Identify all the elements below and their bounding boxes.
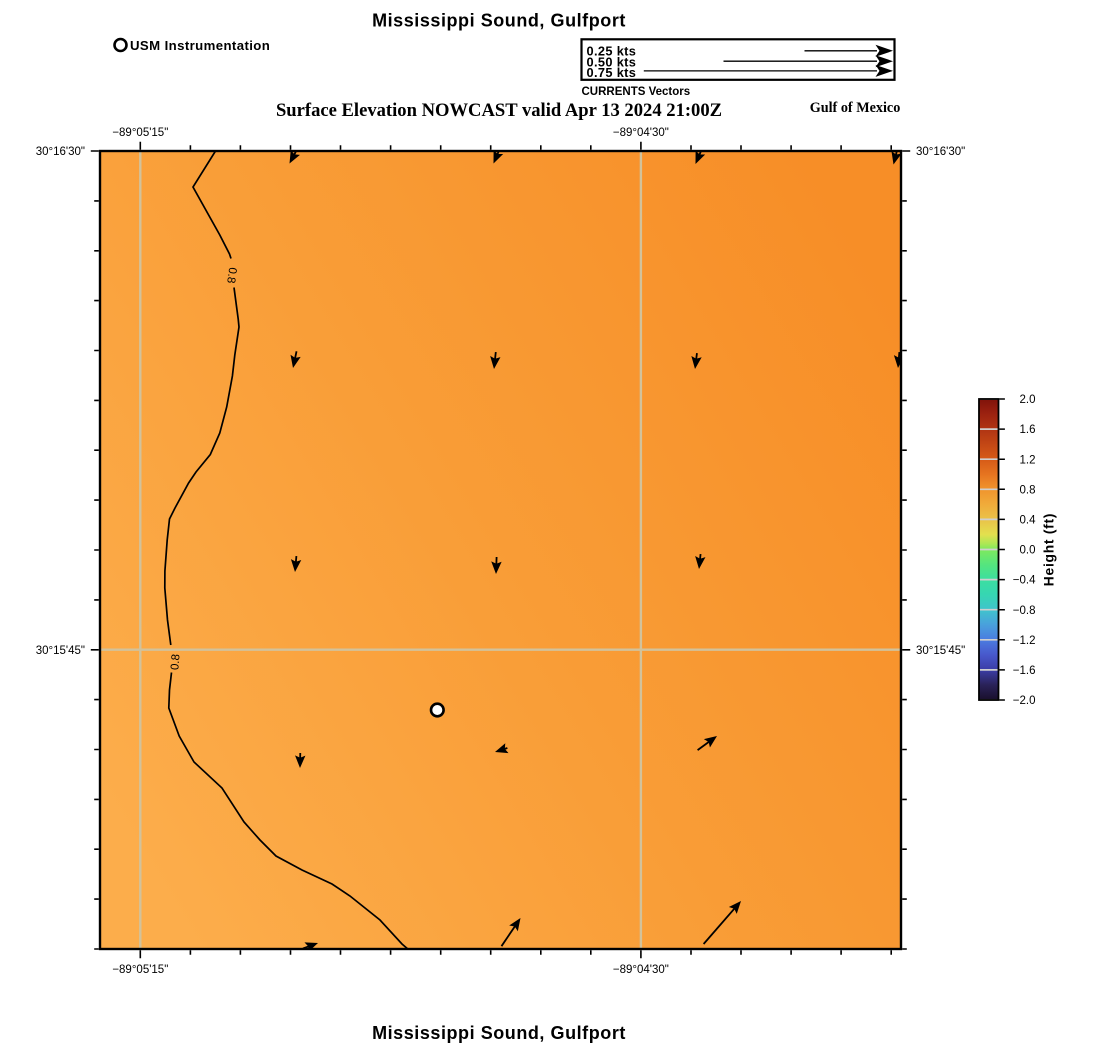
svg-text:−0.4: −0.4 <box>1013 575 1036 587</box>
svg-text:−1.2: −1.2 <box>1013 635 1036 647</box>
svg-text:1.6: 1.6 <box>1020 424 1036 436</box>
svg-text:2.0: 2.0 <box>1020 394 1036 406</box>
svg-text:−89°04'30": −89°04'30" <box>613 964 669 976</box>
svg-text:−89°05'15": −89°05'15" <box>112 964 168 976</box>
svg-text:0.0: 0.0 <box>1020 545 1036 557</box>
svg-text:1.2: 1.2 <box>1020 454 1036 466</box>
svg-text:Height (ft): Height (ft) <box>1042 513 1057 586</box>
svg-text:−0.8: −0.8 <box>1013 605 1036 617</box>
svg-text:Mississippi Sound, Gulfport: Mississippi Sound, Gulfport <box>372 11 626 31</box>
svg-text:30°16'30": 30°16'30" <box>36 146 85 158</box>
svg-text:USM Instrumentation: USM Instrumentation <box>130 38 270 53</box>
svg-text:−2.0: −2.0 <box>1013 695 1036 707</box>
svg-text:Surface Elevation NOWCAST vali: Surface Elevation NOWCAST valid Apr 13 2… <box>276 100 722 121</box>
svg-text:30°15'45": 30°15'45" <box>916 645 965 657</box>
svg-text:30°15'45": 30°15'45" <box>36 645 85 657</box>
svg-text:0.75 kts: 0.75 kts <box>587 65 637 80</box>
svg-text:0.8: 0.8 <box>1020 484 1036 496</box>
svg-text:0.4: 0.4 <box>1020 515 1037 527</box>
svg-text:CURRENTS Vectors: CURRENTS Vectors <box>582 86 691 98</box>
svg-text:0.8: 0.8 <box>169 654 182 671</box>
svg-text:Mississippi Sound, Gulfport: Mississippi Sound, Gulfport <box>372 1023 626 1043</box>
svg-text:−89°04'30": −89°04'30" <box>613 127 669 139</box>
svg-text:0.8: 0.8 <box>224 267 238 284</box>
svg-text:Gulf of Mexico: Gulf of Mexico <box>810 100 901 116</box>
svg-text:−89°05'15": −89°05'15" <box>112 127 168 139</box>
svg-text:30°16'30": 30°16'30" <box>916 146 965 158</box>
svg-text:−1.6: −1.6 <box>1013 665 1036 677</box>
